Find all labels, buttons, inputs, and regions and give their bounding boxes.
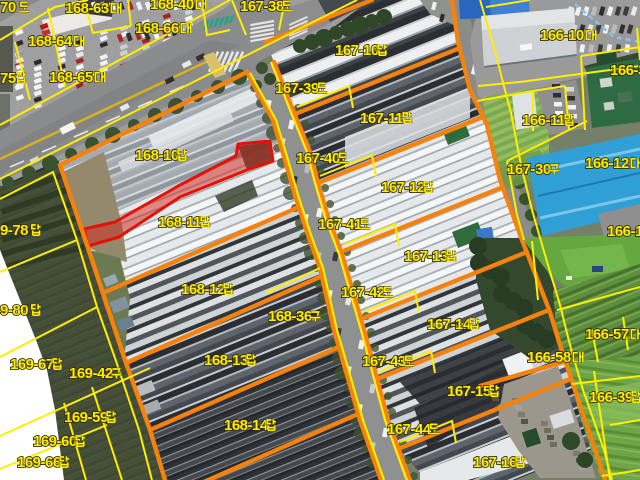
- svg-text:167-44: 167-44: [387, 421, 432, 438]
- svg-text:168-13: 168-13: [204, 352, 248, 369]
- svg-text:167-13: 167-13: [404, 248, 448, 265]
- svg-text:167-12: 167-12: [381, 179, 425, 196]
- svg-text:169-42: 169-42: [69, 365, 113, 382]
- svg-text:168-40: 168-40: [150, 0, 194, 13]
- svg-text:9-80: 9-80: [0, 302, 28, 319]
- svg-text:168-64: 168-64: [28, 33, 73, 50]
- svg-text:168-14: 168-14: [224, 417, 269, 434]
- svg-text:166-13: 166-13: [607, 223, 640, 240]
- svg-text:168-36: 168-36: [268, 308, 312, 325]
- svg-text:169-66: 169-66: [17, 454, 61, 471]
- svg-text:9-78: 9-78: [0, 222, 28, 239]
- svg-text:167-10: 167-10: [335, 42, 379, 59]
- svg-text:169-60: 169-60: [33, 433, 77, 450]
- svg-text:167-11: 167-11: [360, 110, 403, 127]
- svg-text:167-39: 167-39: [275, 80, 319, 97]
- svg-text:167-14: 167-14: [427, 316, 472, 333]
- svg-text:169-59: 169-59: [64, 409, 108, 426]
- svg-text:169-67: 169-67: [10, 356, 54, 373]
- svg-text:70: 70: [0, 0, 16, 16]
- svg-text:167-40: 167-40: [296, 150, 340, 167]
- svg-text:168-63: 168-63: [65, 0, 109, 17]
- svg-text:167-42: 167-42: [341, 284, 385, 301]
- svg-text:168-12: 168-12: [181, 281, 225, 298]
- svg-text:167-30: 167-30: [507, 161, 551, 178]
- svg-text:166-12: 166-12: [585, 155, 629, 172]
- svg-text:167-43: 167-43: [362, 353, 406, 370]
- svg-text:75: 75: [0, 70, 16, 87]
- svg-text:166-3: 166-3: [610, 62, 640, 79]
- svg-text:167-15: 167-15: [447, 383, 491, 400]
- svg-text:166-57: 166-57: [585, 326, 629, 343]
- svg-text:167-16: 167-16: [473, 454, 517, 471]
- svg-text:168-65: 168-65: [49, 69, 93, 86]
- svg-text:167-41: 167-41: [318, 216, 362, 233]
- svg-text:168-66: 168-66: [135, 20, 179, 37]
- svg-text:166-10: 166-10: [540, 27, 584, 44]
- svg-text:168-11: 168-11: [158, 214, 201, 231]
- svg-text:167-38: 167-38: [240, 0, 284, 15]
- svg-text:168-10: 168-10: [135, 147, 179, 164]
- svg-text:166-58: 166-58: [527, 349, 571, 366]
- svg-text:166-11: 166-11: [522, 112, 565, 129]
- svg-text:166-39: 166-39: [589, 389, 633, 406]
